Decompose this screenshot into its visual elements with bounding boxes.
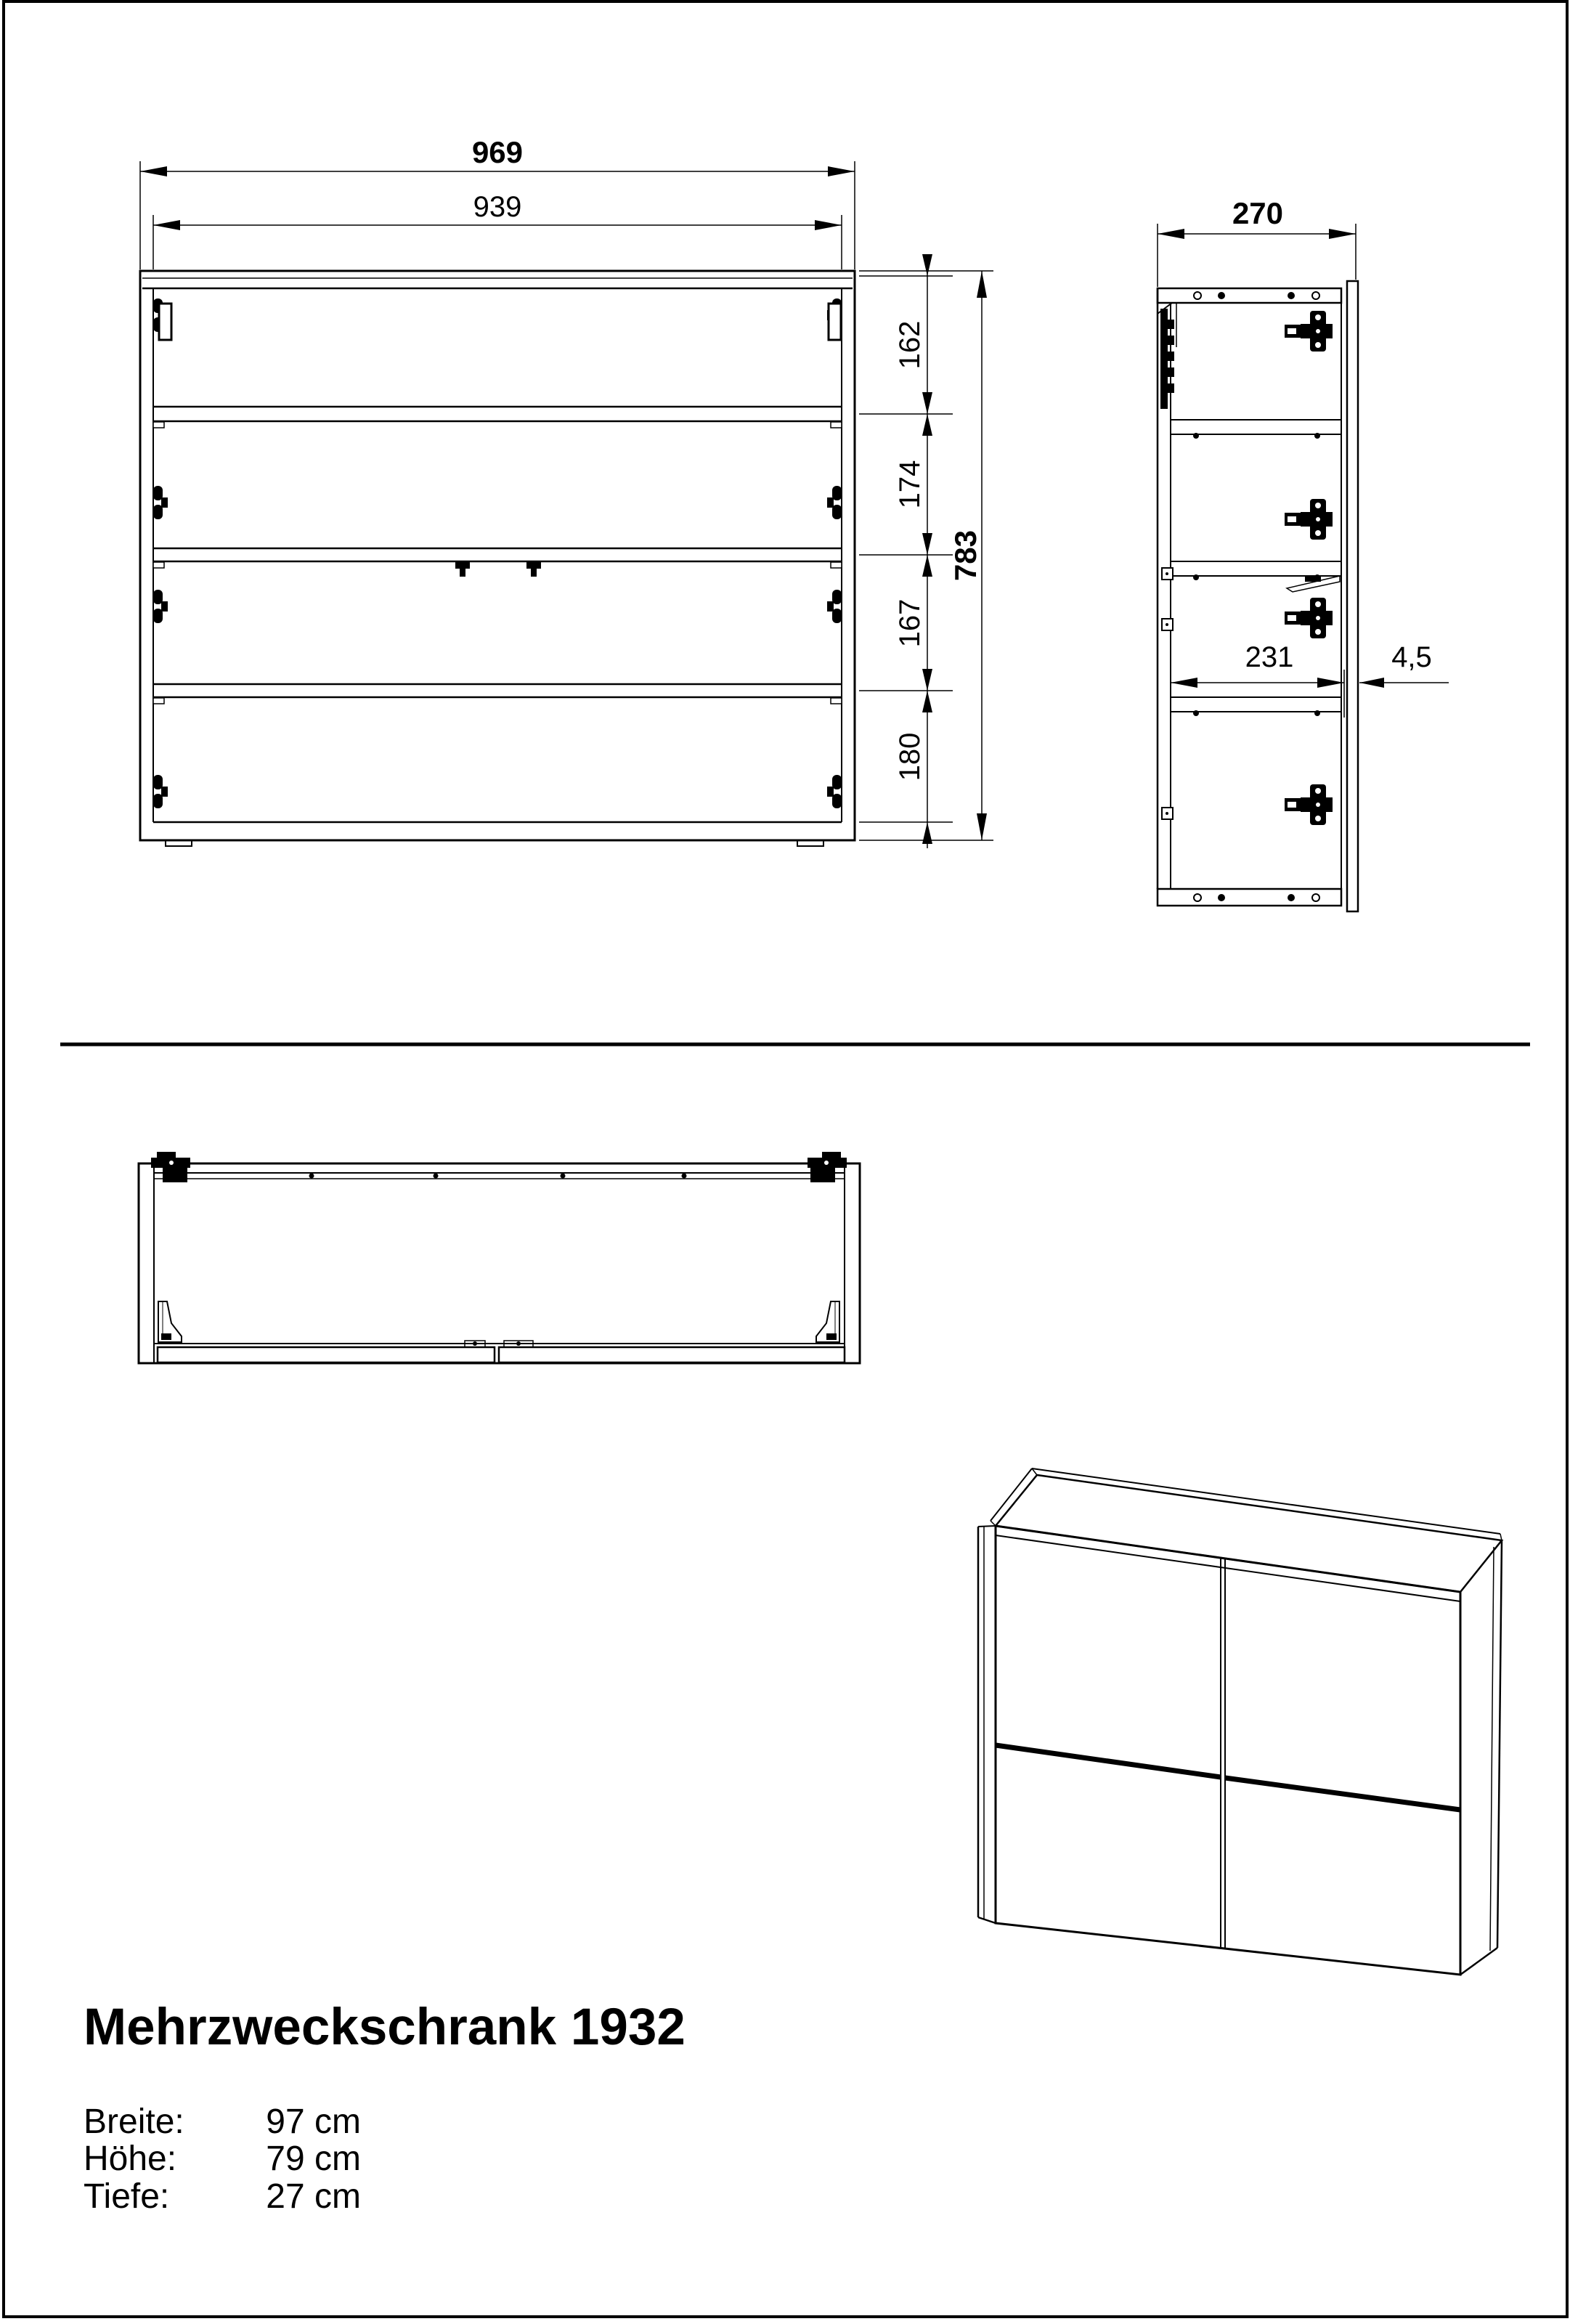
top-right-bracket (816, 1301, 839, 1342)
front-cabinet-outline (140, 271, 855, 840)
dim-height-total: 783 (859, 271, 993, 840)
spec-value-tiefe: 27 cm (266, 2177, 361, 2216)
shelf-notch (831, 562, 842, 568)
spec-label-breite: Breite: (84, 2102, 184, 2141)
perspective-view (978, 1468, 1502, 1975)
front-shelf-2 (153, 548, 842, 561)
product-title: Mehrzweckschrank 1932 (84, 1999, 686, 2056)
spec-table: Breite: 97 cm Höhe: 79 cm Tiefe: 27 cm (84, 2102, 361, 2216)
top-right-door (499, 1347, 845, 1362)
shelf-notch (153, 422, 164, 428)
shelf-notch (153, 562, 164, 568)
top-outline (139, 1163, 860, 1363)
front-view: 969 939 162 174 (140, 135, 993, 848)
spec-value-hoehe: 79 cm (266, 2140, 361, 2178)
front-hinges (153, 298, 842, 808)
dim-label-969: 969 (472, 135, 523, 169)
persp-front-face (996, 1526, 1460, 1975)
side-wall-bracket (1158, 303, 1176, 409)
dim-depth-total: 270 (1158, 196, 1356, 287)
side-view: 270 231 4,5 (1158, 196, 1449, 911)
side-top-panel (1158, 288, 1341, 303)
front-right-damper (829, 304, 841, 340)
top-left-bracket (158, 1301, 182, 1342)
technical-drawing-sheet: 969 939 162 174 (0, 0, 1570, 2324)
persp-right-edge-inner (1490, 1547, 1494, 1951)
persp-top-trim-left (991, 1468, 1032, 1521)
dim-depth-inner: 231 (1171, 641, 1344, 718)
shelf-notch (831, 698, 842, 704)
side-diagonal-bracket (1287, 576, 1340, 592)
dim-label-174: 174 (894, 460, 926, 509)
dim-label-783: 783 (948, 530, 983, 581)
front-left-damper (159, 304, 171, 340)
persp-seam-right (1225, 1778, 1460, 1810)
persp-bottom-right-edge (1460, 1948, 1497, 1975)
dim-label-231: 231 (1245, 641, 1294, 673)
persp-top-trim-outer (1032, 1468, 1500, 1534)
front-shelf-1 (153, 407, 842, 421)
side-door-panel (1347, 281, 1358, 911)
side-shelf-1 (1171, 420, 1341, 439)
dim-section-chain: 162 174 167 180 (859, 254, 953, 848)
dim-label-167: 167 (894, 599, 926, 648)
spec-label-hoehe: Höhe: (84, 2140, 176, 2178)
side-bottom-panel (1158, 889, 1341, 906)
front-shelf-3 (153, 684, 842, 697)
side-hinge-crosses (1285, 311, 1333, 825)
spec-value-breite: 97 cm (266, 2102, 361, 2141)
shelf-notch (153, 698, 164, 704)
top-left-door (158, 1347, 495, 1362)
dim-label-162: 162 (894, 321, 926, 370)
spec-label-tiefe: Tiefe: (84, 2177, 169, 2216)
top-right-hanger (808, 1152, 847, 1182)
persp-top-face (996, 1475, 1502, 1592)
dim-width-inner: 939 (153, 191, 842, 269)
dim-label-45: 4,5 (1391, 641, 1432, 673)
persp-front-top-double (996, 1535, 1460, 1601)
dim-gap: 4,5 (1359, 641, 1449, 688)
dim-label-180: 180 (894, 733, 926, 781)
persp-seam-left (996, 1745, 1221, 1777)
top-left-hanger (151, 1152, 190, 1182)
dim-label-270: 270 (1232, 196, 1283, 230)
front-center-clips (455, 562, 541, 577)
page-border (4, 1, 1567, 2317)
shelf-notch (831, 422, 842, 428)
top-view (139, 1152, 860, 1363)
persp-right-edge-outer (1497, 1540, 1502, 1948)
dim-label-939: 939 (473, 191, 522, 223)
side-shelf-3 (1171, 697, 1341, 716)
